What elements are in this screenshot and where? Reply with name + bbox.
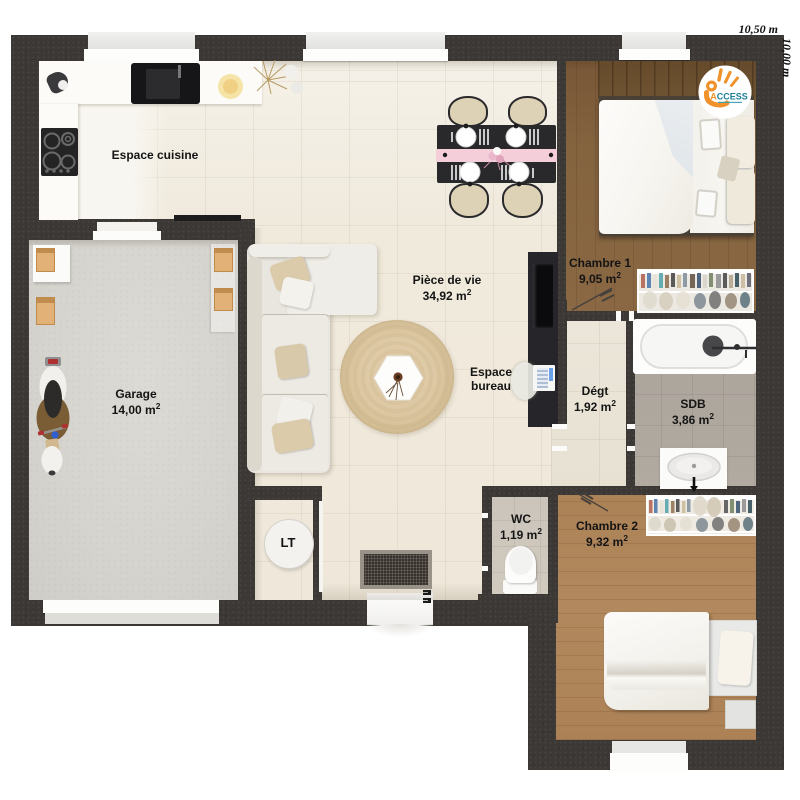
svg-text:ACCESS: ACCESS [710, 92, 748, 102]
